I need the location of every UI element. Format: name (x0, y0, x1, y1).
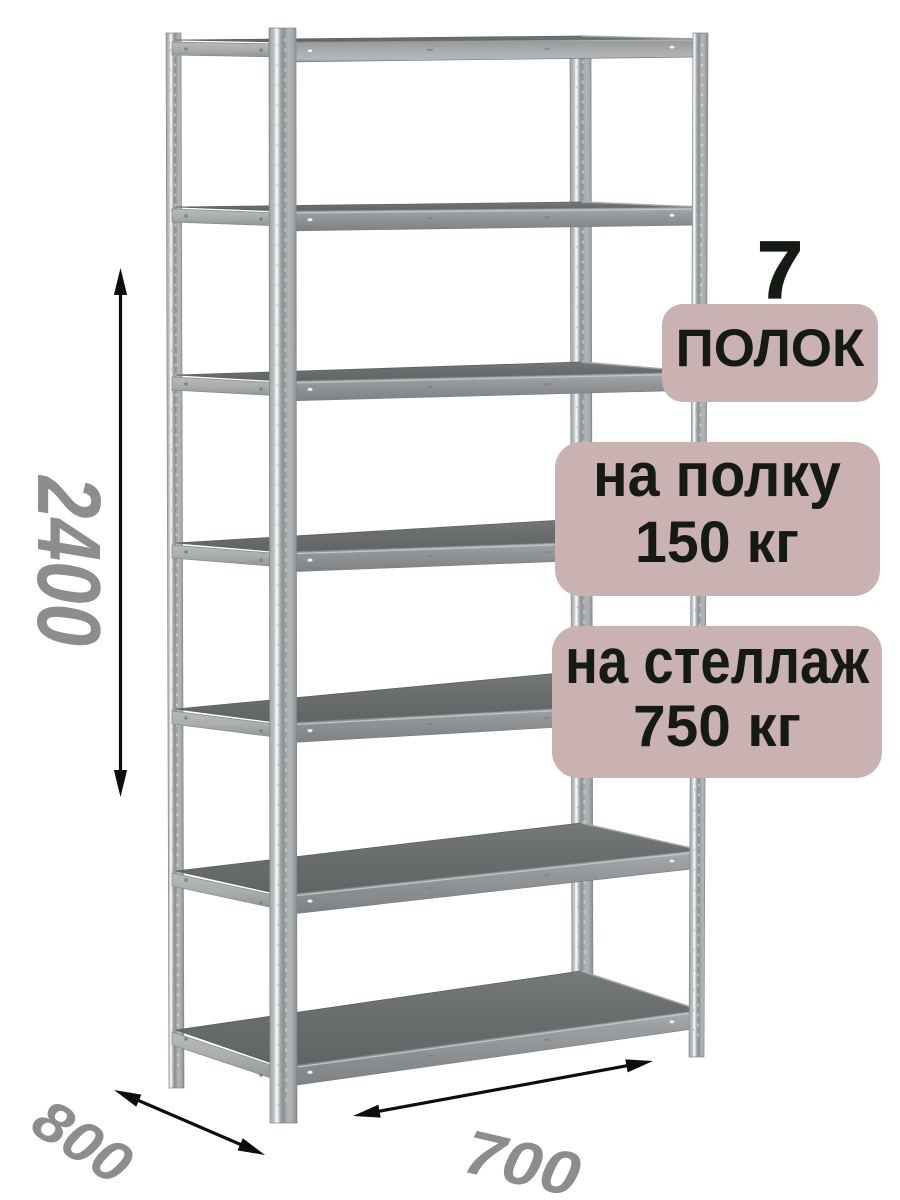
svg-text:7: 7 (757, 225, 803, 316)
svg-text:на стеллаж: на стеллаж (565, 625, 870, 697)
svg-text:750 кг: 750 кг (633, 694, 801, 759)
svg-text:2400: 2400 (18, 474, 118, 646)
svg-text:ПОЛОК: ПОЛОК (676, 319, 865, 378)
svg-text:150 кг: 150 кг (635, 510, 799, 575)
svg-text:на полку: на полку (593, 441, 841, 510)
